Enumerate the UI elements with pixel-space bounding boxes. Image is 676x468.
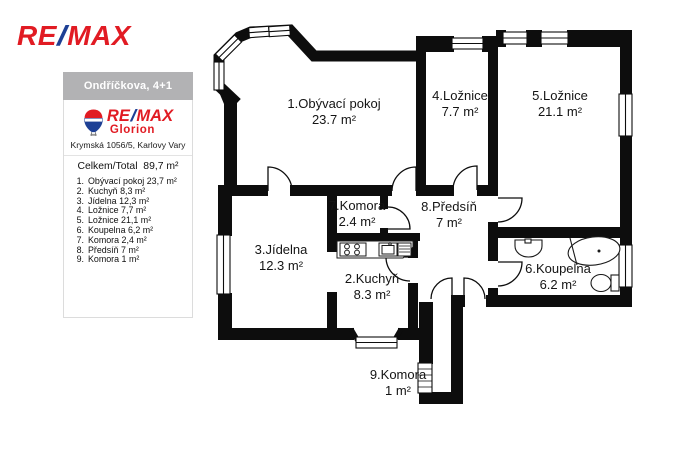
window (503, 32, 527, 44)
window (619, 94, 632, 136)
plan-room-label-obyvaci-pokoj: 1.Obývací pokoj 23.7 m² (287, 96, 380, 128)
window (452, 38, 483, 49)
room-area: 23.7 m² (287, 112, 380, 128)
window (217, 235, 230, 294)
kitchen-sink-icon (379, 243, 397, 256)
plan-room-label-komora-9: 9.Komora 1 m² (370, 367, 426, 399)
toilet-icon (591, 275, 619, 292)
window (214, 62, 224, 90)
drainer-icon (398, 243, 411, 256)
plan-room-label-loznice-4: 4.Ložnice 7.7 m² (432, 88, 488, 120)
room-area: 21.1 m² (532, 104, 588, 120)
room-area: 6.2 m² (525, 277, 591, 293)
door-swing (498, 198, 522, 222)
window (215, 35, 241, 61)
room-area: 1 m² (370, 383, 426, 399)
door-swing (388, 207, 410, 229)
plan-room-label-kuchyn: 2.Kuchyň 8.3 m² (345, 271, 399, 303)
window (356, 337, 397, 348)
window (249, 26, 270, 37)
window (269, 25, 291, 36)
door-swing (268, 167, 292, 191)
room-area: 12.3 m² (255, 258, 308, 274)
window (541, 32, 568, 44)
room-name: 2.Kuchyň (345, 271, 399, 287)
room-area: 7 m² (421, 215, 477, 231)
door-swing (392, 167, 416, 191)
floor-plan (0, 0, 676, 468)
kitchen-counter (337, 241, 413, 258)
room-name: 4.Ložnice (432, 88, 488, 104)
window (619, 245, 632, 287)
room-name: 3.Jídelna (255, 242, 308, 258)
plan-room-label-jidelna: 3.Jídelna 12.3 m² (255, 242, 308, 274)
room-name: 7.Komora (329, 198, 385, 214)
plan-room-label-predsin: 8.Předsíň 7 m² (421, 199, 477, 231)
room-name: 9.Komora (370, 367, 426, 383)
plan-room-label-komora-7: 7.Komora 2.4 m² (329, 198, 385, 230)
door-swing (464, 278, 485, 299)
stove-icon (340, 243, 366, 256)
room-area: 2.4 m² (329, 214, 385, 230)
door-swing (453, 166, 477, 190)
room-area: 8.3 m² (345, 287, 399, 303)
room-area: 7.7 m² (432, 104, 488, 120)
room-name: 8.Předsíň (421, 199, 477, 215)
door-swing (498, 262, 522, 286)
room-name: 6.Koupelna (525, 261, 591, 277)
plan-room-label-loznice-5: 5.Ložnice 21.1 m² (532, 88, 588, 120)
room-name: 5.Ložnice (532, 88, 588, 104)
door-swing (431, 278, 452, 299)
bathroom-sink-icon (515, 239, 542, 257)
page: RE/MAX Ondříčkova, 4+1 RE/MAX Glorion Kr… (0, 0, 676, 468)
plan-room-label-koupelna: 6.Koupelna 6.2 m² (525, 261, 591, 293)
room-name: 1.Obývací pokoj (287, 96, 380, 112)
